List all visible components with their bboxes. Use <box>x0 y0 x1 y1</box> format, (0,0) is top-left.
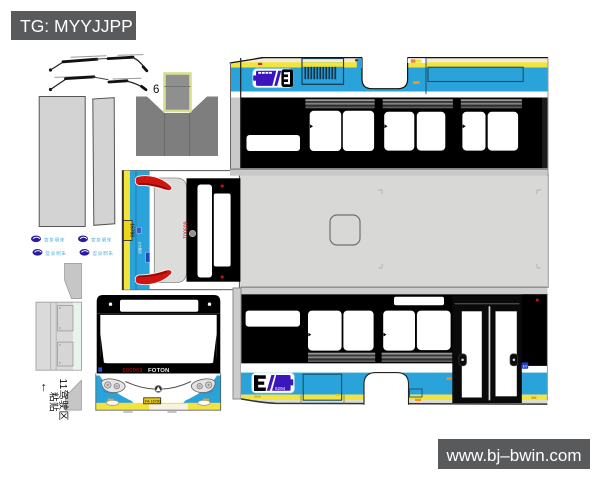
svg-text:粘贴: 粘贴 <box>48 392 60 412</box>
svg-text:TG: MYYJJPP: TG: MYYJJPP <box>20 16 133 36</box>
svg-text:6: 6 <box>153 84 159 96</box>
svg-text:官泉明朱: 官泉明朱 <box>46 250 67 257</box>
svg-text:FOTON: FOTON <box>148 368 170 374</box>
svg-text:6294: 6294 <box>275 386 286 391</box>
svg-text:↑: ↑ <box>41 380 47 394</box>
svg-text:www.bj–bwin.com: www.bj–bwin.com <box>445 446 581 465</box>
svg-text:官泉明朱: 官泉明朱 <box>93 250 114 257</box>
svg-text:公交集团: 公交集团 <box>138 242 143 254</box>
svg-text:600061: 600061 <box>123 368 143 374</box>
svg-text:EV: EV <box>523 364 528 368</box>
svg-text:FA·16780: FA·16780 <box>145 400 161 404</box>
svg-text:官泉明朱: 官泉明朱 <box>91 236 112 243</box>
svg-text:官泉明朱: 官泉明朱 <box>44 236 65 243</box>
svg-text:603001: 603001 <box>182 222 188 239</box>
svg-text:16780: 16780 <box>129 223 135 237</box>
